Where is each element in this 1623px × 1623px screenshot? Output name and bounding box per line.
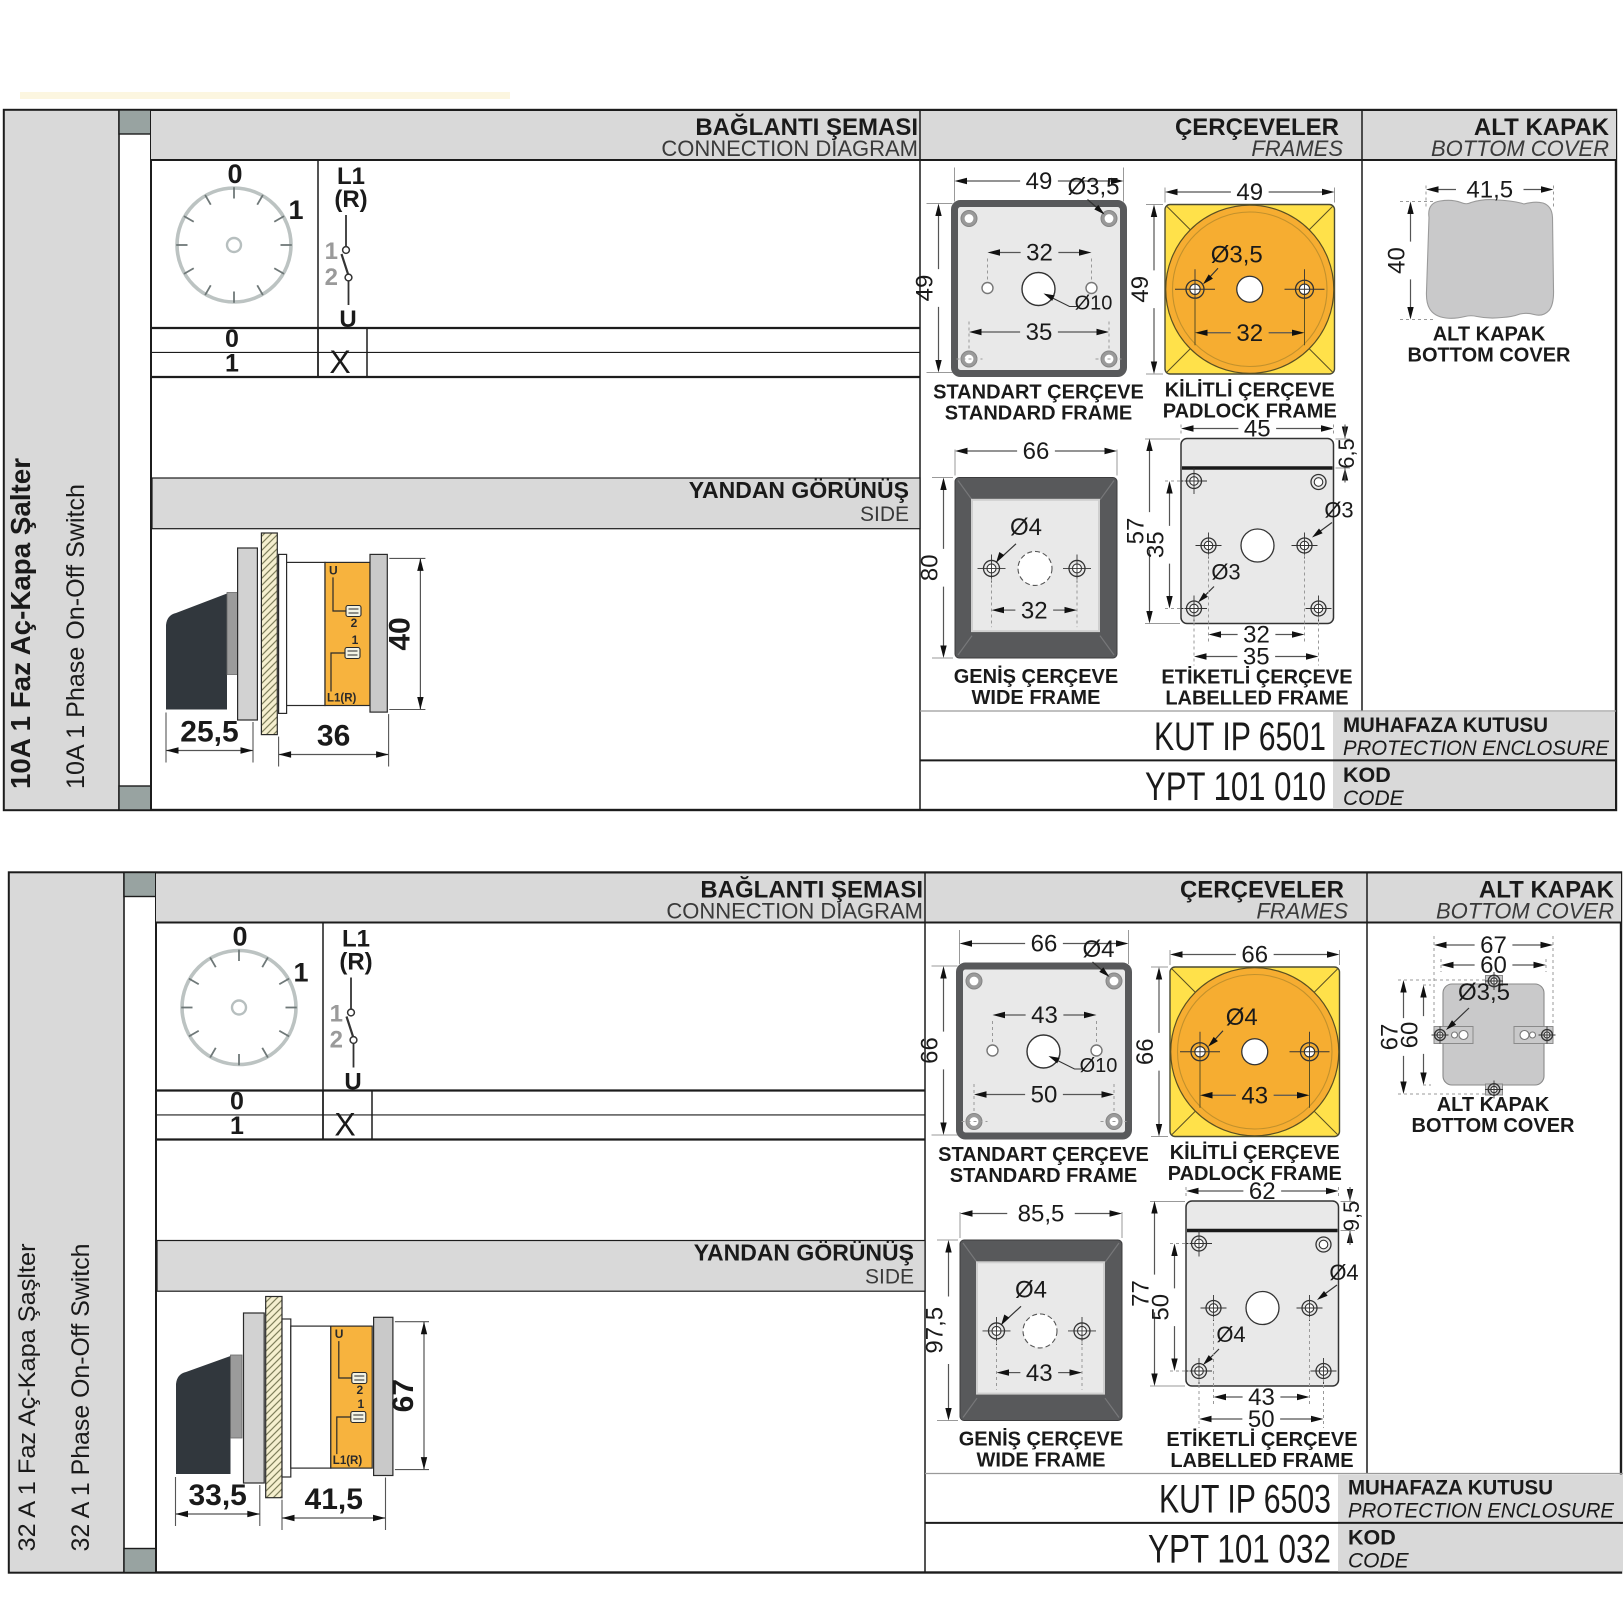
svg-text:BOTTOM COVER: BOTTOM COVER <box>1412 1115 1576 1137</box>
svg-text:2: 2 <box>351 616 358 630</box>
svg-text:32 A 1 Phase On-Off Switch: 32 A 1 Phase On-Off Switch <box>67 1244 95 1552</box>
svg-text:80: 80 <box>917 554 944 581</box>
svg-text:9,5: 9,5 <box>1339 1201 1364 1232</box>
svg-text:67: 67 <box>387 1379 420 1412</box>
svg-text:1: 1 <box>357 1397 364 1411</box>
svg-text:YPT 101 032: YPT 101 032 <box>1148 1528 1331 1572</box>
svg-text:U: U <box>329 563 338 577</box>
svg-text:KUT IP 6501: KUT IP 6501 <box>1154 715 1326 759</box>
svg-text:32: 32 <box>1236 320 1263 347</box>
svg-text:1: 1 <box>230 1112 244 1140</box>
svg-text:10A 1 Phase On-Off Switch: 10A 1 Phase On-Off Switch <box>62 484 90 789</box>
svg-text:CONNECTION DIAGRAM: CONNECTION DIAGRAM <box>661 136 918 161</box>
svg-text:PROTECTION ENCLOSURE: PROTECTION ENCLOSURE <box>1343 737 1610 760</box>
svg-text:KOD: KOD <box>1343 763 1391 787</box>
svg-text:LABELLED FRAME: LABELLED FRAME <box>1170 1450 1353 1472</box>
svg-text:49: 49 <box>1127 276 1154 303</box>
svg-text:1: 1 <box>330 1001 343 1028</box>
svg-text:97,5: 97,5 <box>922 1307 949 1354</box>
svg-text:60: 60 <box>1480 952 1507 979</box>
svg-text:10A 1 Faz Aç-Kapa Şalter: 10A 1 Faz Aç-Kapa Şalter <box>5 458 36 789</box>
svg-text:BOTTOM COVER: BOTTOM COVER <box>1431 136 1609 161</box>
svg-text:Ø10: Ø10 <box>1075 293 1113 315</box>
svg-text:Ø3,5: Ø3,5 <box>1211 241 1263 268</box>
svg-text:ALT KAPAK: ALT KAPAK <box>1433 324 1546 346</box>
svg-text:33,5: 33,5 <box>188 1479 246 1512</box>
svg-text:66: 66 <box>1023 438 1050 465</box>
svg-text:36: 36 <box>317 720 350 753</box>
svg-text:ETİKETLİ ÇERÇEVE: ETİKETLİ ÇERÇEVE <box>1166 1428 1357 1451</box>
svg-text:Ø4: Ø4 <box>1010 514 1042 541</box>
svg-text:1: 1 <box>325 238 338 265</box>
svg-text:Ø3,5: Ø3,5 <box>1458 979 1510 1006</box>
svg-text:X: X <box>334 1107 355 1143</box>
svg-text:49: 49 <box>912 275 939 302</box>
svg-text:YPT 101 010: YPT 101 010 <box>1145 765 1326 809</box>
svg-text:43: 43 <box>1241 1082 1268 1109</box>
svg-text:35: 35 <box>1143 531 1170 558</box>
svg-text:STANDARD FRAME: STANDARD FRAME <box>945 403 1132 425</box>
svg-text:YANDAN GÖRÜNÜŞ: YANDAN GÖRÜNÜŞ <box>689 477 909 503</box>
svg-text:62: 62 <box>1249 1178 1276 1205</box>
svg-text:PROTECTION ENCLOSURE: PROTECTION ENCLOSURE <box>1348 1500 1615 1523</box>
svg-text:SIDE: SIDE <box>860 503 909 526</box>
svg-text:41,5: 41,5 <box>1466 177 1513 204</box>
svg-text:40: 40 <box>383 617 416 650</box>
svg-text:32 A 1 Faz Aç-Kapa Şaşlter: 32 A 1 Faz Aç-Kapa Şaşlter <box>14 1244 41 1552</box>
svg-text:41,5: 41,5 <box>305 1483 363 1516</box>
svg-text:Ø4: Ø4 <box>1082 936 1114 963</box>
svg-text:KOD: KOD <box>1348 1526 1396 1550</box>
svg-text:Ø4: Ø4 <box>1015 1276 1047 1303</box>
svg-text:2: 2 <box>356 1383 363 1397</box>
svg-text:KİLİTLİ ÇERÇEVE: KİLİTLİ ÇERÇEVE <box>1170 1141 1340 1164</box>
svg-text:85,5: 85,5 <box>1018 1201 1065 1228</box>
svg-text:CONNECTION DIAGRAM: CONNECTION DIAGRAM <box>666 899 923 924</box>
svg-text:CODE: CODE <box>1348 1550 1410 1573</box>
svg-text:BOTTOM COVER: BOTTOM COVER <box>1408 345 1572 367</box>
svg-text:KİLİTLİ ÇERÇEVE: KİLİTLİ ÇERÇEVE <box>1165 379 1335 402</box>
svg-text:Ø3,5: Ø3,5 <box>1067 174 1119 201</box>
svg-text:Ø4: Ø4 <box>1226 1004 1258 1031</box>
svg-text:GENİŞ ÇERÇEVE: GENİŞ ÇERÇEVE <box>959 1428 1123 1451</box>
svg-text:35: 35 <box>1026 319 1053 346</box>
svg-text:40: 40 <box>1384 247 1411 274</box>
svg-text:43: 43 <box>1031 1002 1058 1029</box>
svg-text:32: 32 <box>1021 597 1048 624</box>
svg-text:66: 66 <box>1241 942 1268 969</box>
svg-text:Ø4: Ø4 <box>1329 1260 1358 1285</box>
svg-text:32: 32 <box>1026 240 1053 267</box>
svg-text:1: 1 <box>352 633 359 647</box>
svg-text:CODE: CODE <box>1343 787 1405 810</box>
svg-text:ALT KAPAK: ALT KAPAK <box>1437 1094 1550 1116</box>
svg-text:0: 0 <box>232 922 247 952</box>
svg-text:KUT IP 6503: KUT IP 6503 <box>1159 1478 1331 1522</box>
svg-text:FRAMES: FRAMES <box>1256 899 1348 924</box>
svg-text:X: X <box>329 344 350 380</box>
svg-text:FRAMES: FRAMES <box>1251 136 1343 161</box>
svg-text:66: 66 <box>917 1037 944 1064</box>
svg-text:ETİKETLİ ÇERÇEVE: ETİKETLİ ÇERÇEVE <box>1161 666 1352 689</box>
svg-text:BOTTOM COVER: BOTTOM COVER <box>1436 899 1614 924</box>
svg-text:MUHAFAZA KUTUSU: MUHAFAZA KUTUSU <box>1348 1476 1553 1500</box>
svg-text:Ø10: Ø10 <box>1080 1055 1118 1077</box>
svg-text:STANDART ÇERÇEVE: STANDART ÇERÇEVE <box>938 1144 1149 1166</box>
svg-text:L1(R): L1(R) <box>327 693 357 705</box>
svg-text:25,5: 25,5 <box>180 716 238 749</box>
svg-text:Ø3: Ø3 <box>1211 560 1240 585</box>
svg-text:GENİŞ ÇERÇEVE: GENİŞ ÇERÇEVE <box>954 665 1118 688</box>
svg-text:2: 2 <box>325 264 338 291</box>
svg-text:L1(R): L1(R) <box>333 1455 363 1467</box>
svg-text:Ø3: Ø3 <box>1324 498 1353 523</box>
svg-text:49: 49 <box>1236 179 1263 206</box>
svg-text:60: 60 <box>1397 1022 1424 1049</box>
svg-text:MUHAFAZA KUTUSU: MUHAFAZA KUTUSU <box>1343 713 1548 737</box>
svg-text:45: 45 <box>1244 416 1271 443</box>
svg-text:WIDE FRAME: WIDE FRAME <box>972 687 1101 709</box>
svg-text:66: 66 <box>1132 1038 1159 1065</box>
svg-text:WIDE FRAME: WIDE FRAME <box>977 1450 1106 1472</box>
svg-text:STANDART ÇERÇEVE: STANDART ÇERÇEVE <box>933 382 1144 404</box>
svg-text:6,5: 6,5 <box>1334 438 1359 469</box>
svg-text:43: 43 <box>1026 1360 1053 1387</box>
svg-text:STANDARD FRAME: STANDARD FRAME <box>950 1165 1137 1187</box>
svg-text:50: 50 <box>1031 1082 1058 1109</box>
svg-text:Ø4: Ø4 <box>1216 1322 1245 1347</box>
svg-text:0: 0 <box>227 159 242 189</box>
svg-text:49: 49 <box>1026 168 1053 195</box>
svg-text:YANDAN GÖRÜNÜŞ: YANDAN GÖRÜNÜŞ <box>694 1240 914 1266</box>
svg-text:U: U <box>335 1327 344 1341</box>
svg-text:66: 66 <box>1031 931 1058 958</box>
svg-text:SIDE: SIDE <box>865 1266 914 1289</box>
svg-text:1: 1 <box>293 958 308 988</box>
svg-text:1: 1 <box>288 195 303 225</box>
svg-text:2: 2 <box>330 1027 343 1054</box>
svg-text:(R): (R) <box>334 186 367 213</box>
svg-text:LABELLED FRAME: LABELLED FRAME <box>1165 688 1348 710</box>
svg-text:50: 50 <box>1148 1294 1175 1321</box>
svg-text:(R): (R) <box>339 949 372 976</box>
svg-text:1: 1 <box>225 350 239 378</box>
